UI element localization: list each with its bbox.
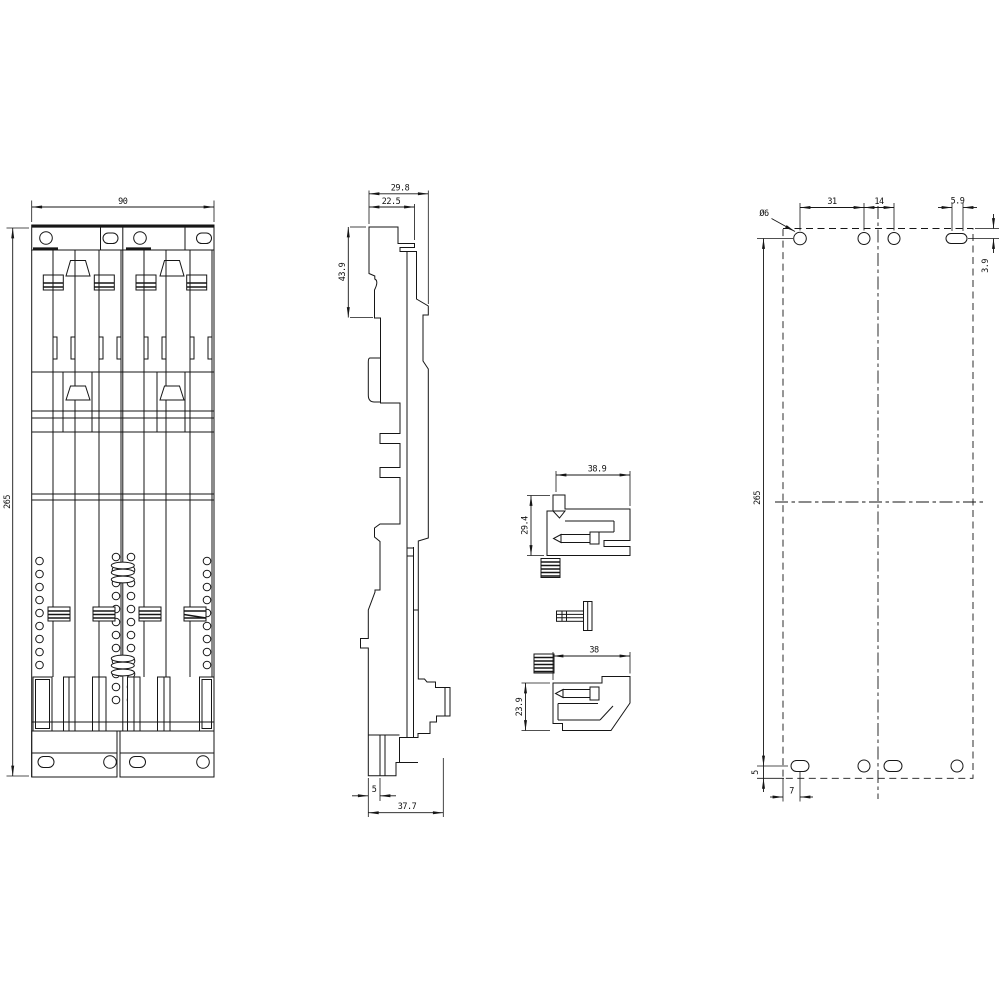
dim-label-side-depth-total: 29.8 bbox=[391, 184, 410, 194]
trapezoid-tab bbox=[160, 386, 184, 400]
front-width-dimension: 90 bbox=[32, 197, 214, 222]
front-bottom-plates bbox=[32, 731, 214, 777]
din-rail-hook bbox=[368, 358, 380, 402]
trapezoid-tab bbox=[160, 261, 184, 277]
dim-label-upper-clip-width: 38.9 bbox=[588, 465, 607, 475]
left-edge-offset-dimension: 7 bbox=[770, 772, 813, 802]
dim-label-side-depth-upper: 22.5 bbox=[382, 197, 401, 207]
dim-label-slot-length: 5.9 bbox=[951, 197, 965, 207]
side-foot-thickness-dimension: 5 bbox=[352, 778, 396, 817]
dim-label-side-upper-height: 43.9 bbox=[338, 262, 348, 281]
detail-upper-clip: 38.9 29.4 bbox=[521, 465, 631, 578]
hole-diameter-leader: Ø6 bbox=[759, 208, 795, 232]
front-height-dimension: 265 bbox=[3, 228, 29, 776]
dim-label-pitch-inner: 14 bbox=[874, 197, 884, 207]
dim-label-bottom-edge-offset: 5 bbox=[751, 770, 761, 775]
side-view: 29.8 22.5 43.9 5 37.7 bbox=[338, 184, 450, 818]
front-view: 90 265 bbox=[3, 197, 214, 777]
detail-screw bbox=[557, 602, 593, 631]
drill-slot bbox=[884, 761, 902, 772]
hole-pitch-dimensions: 31 14 bbox=[800, 197, 894, 231]
dim-label-front-height: 265 bbox=[3, 495, 13, 509]
dim-label-vertical-pitch: 265 bbox=[753, 491, 763, 505]
plate-hole-slot bbox=[130, 757, 146, 768]
plate-hole-round bbox=[197, 756, 210, 769]
dim-label-lower-clip-height: 23.9 bbox=[515, 697, 525, 716]
dim-label-side-foot-depth: 37.7 bbox=[398, 802, 417, 812]
side-upper-height-dimension: 43.9 bbox=[338, 227, 373, 318]
plate-hole-slot bbox=[197, 233, 212, 244]
plate-hole-slot bbox=[103, 233, 118, 244]
trapezoid-tab bbox=[66, 261, 90, 277]
front-contact-blocks bbox=[33, 677, 214, 731]
dim-label-upper-clip-height: 29.4 bbox=[521, 516, 531, 535]
front-spring-lower bbox=[111, 655, 134, 676]
hatch-block-upper bbox=[541, 559, 560, 578]
dim-label-pitch-outer: 31 bbox=[827, 197, 837, 207]
trapezoid-tab bbox=[66, 386, 90, 400]
drill-hole bbox=[888, 233, 900, 245]
lower-clip-width-dimension: 38 bbox=[553, 646, 630, 681]
slot-length-dimension: 5.9 bbox=[938, 197, 977, 232]
drill-slot bbox=[946, 234, 967, 244]
drawing-svg: 90 265 bbox=[0, 0, 1000, 1000]
front-upper-clips bbox=[43, 275, 206, 290]
drilling-plan-view: Ø6 31 14 5.9 3.9 bbox=[751, 197, 999, 802]
drill-hole bbox=[794, 232, 807, 245]
dim-label-side-foot-thickness: 5 bbox=[372, 785, 377, 795]
plate-hole-round bbox=[40, 232, 53, 245]
drill-hole bbox=[858, 760, 870, 772]
dim-label-hole-diameter: Ø6 bbox=[759, 208, 769, 219]
technical-drawing-canvas: 90 265 bbox=[0, 0, 1000, 1000]
hatch-block-lower bbox=[534, 654, 554, 673]
top-edge-offset-dimension: 3.9 bbox=[968, 214, 999, 273]
bottom-edge-offset-dimension: 5 bbox=[751, 766, 784, 792]
front-top-plate bbox=[32, 225, 214, 250]
dim-label-front-width: 90 bbox=[118, 197, 128, 207]
upper-clip-width-dimension: 38.9 bbox=[556, 465, 630, 507]
plate-hole-round bbox=[104, 756, 117, 769]
dim-label-lower-clip-width: 38 bbox=[589, 646, 599, 656]
front-spring-upper bbox=[111, 562, 134, 583]
dim-label-top-edge-offset: 3.9 bbox=[981, 259, 991, 273]
side-profile bbox=[361, 227, 451, 776]
plate-hole-slot bbox=[38, 757, 54, 768]
plate-hole-round bbox=[134, 232, 147, 245]
detail-lower-clip: 38 23.9 bbox=[515, 646, 630, 731]
upper-clip-height-dimension: 29.4 bbox=[521, 496, 551, 556]
drill-slot bbox=[791, 761, 809, 772]
drill-hole bbox=[951, 760, 963, 772]
upper-clip-outline bbox=[547, 495, 630, 556]
dim-label-left-edge-offset: 7 bbox=[789, 787, 794, 797]
drill-hole bbox=[858, 233, 870, 245]
lower-clip-height-dimension: 23.9 bbox=[515, 683, 550, 731]
